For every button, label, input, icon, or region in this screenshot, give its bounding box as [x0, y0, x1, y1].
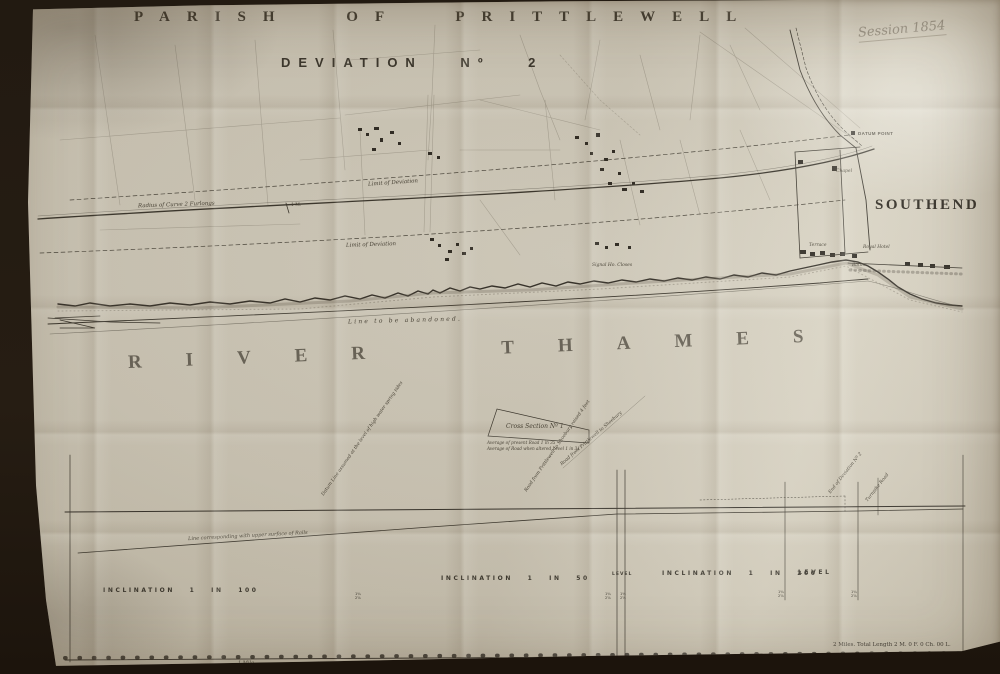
datum-point-label: DATUM POINT: [858, 131, 893, 136]
building-blocks: [358, 127, 950, 269]
cross-section-note1: Average of present Road 1 in 35: [487, 440, 555, 445]
baths-label: Baths: [852, 263, 865, 268]
plan-sheet: PARISH OF PRITTLEWELL DEVIATION Nº 2 Ses…: [0, 0, 1000, 674]
gradient-post-bottom: 2⅝: [355, 596, 361, 600]
photographed-railway-plan: { "sheet": { "title": "PARISH OF PRITTLE…: [0, 0, 1000, 674]
gradient-post-bottom: 2⅝: [778, 594, 784, 598]
mile-post-label: 1 M.: [291, 203, 301, 208]
gradient-post: 1¾2⅝: [605, 592, 611, 600]
royal-hotel-label: Royal Hotel: [863, 245, 890, 250]
total-length-footer: 2 Miles. Total Length 2 M. 0 F. 0 Ch. 00…: [833, 642, 951, 648]
cross-section-title: Cross Section Nº 1: [506, 423, 564, 430]
gradient-post-bottom: 2⅝: [605, 596, 611, 600]
sheet-title: PARISH OF PRITTLEWELL: [134, 9, 753, 26]
datum-point-marker: [851, 131, 855, 135]
scale-mile-label: 1 Mile: [238, 660, 254, 666]
gradient-post: 1¾2⅝: [620, 592, 626, 600]
limit-of-deviation-lines: [40, 135, 850, 253]
gradient-label-level-2: LEVEL: [798, 569, 832, 576]
southend-label: SOUTHEND: [875, 197, 979, 214]
gradient-post: 1¾2⅝: [355, 592, 361, 600]
gradient-post-bottom: 2⅝: [851, 594, 857, 598]
southend-road: [790, 28, 870, 250]
section-linework: [65, 455, 965, 662]
gradient-label-level-1: LEVEL: [612, 572, 632, 577]
cross-section-note2: Average of Road when altered Level 1 in …: [487, 446, 580, 451]
signal-closes-label: Signal Ho. Closes: [592, 263, 632, 268]
terrace-label: Terrace: [809, 243, 826, 248]
gradient-post: 1¾2⅝: [851, 590, 857, 598]
chapel-label: Chapel: [836, 169, 852, 174]
gradient-post: 1¾2⅝: [778, 590, 784, 598]
gradient-post-bottom: 2⅝: [620, 596, 626, 600]
gradient-label-1in100: INCLINATION 1 IN 100: [103, 587, 259, 594]
sheet-subtitle: DEVIATION Nº 2: [281, 55, 543, 70]
gradient-label-1in200: INCLINATION 1 IN 200: [662, 570, 818, 577]
photo-background: PARISH OF PRITTLEWELL DEVIATION Nº 2 Ses…: [0, 0, 1000, 674]
left-junction: [48, 316, 160, 328]
foreshore-line-right: [868, 281, 958, 306]
gradient-label-1in50: INCLINATION 1 IN 50: [441, 575, 590, 582]
